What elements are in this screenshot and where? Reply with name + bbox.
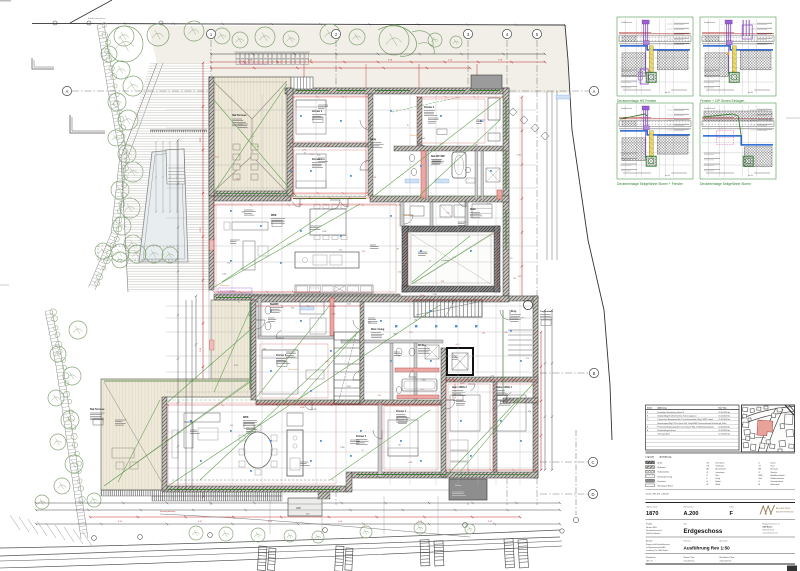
svg-text:A: A [593,89,596,94]
svg-text:Fensterbau Schreinerliste Stan: Fensterbau Schreinerliste Stand 10 [658,411,685,414]
svg-text:Decke: Decke [771,463,776,465]
svg-text:4.50: 4.50 [528,411,531,413]
svg-text:1.885: 1.885 [421,380,425,382]
svg-text:2.455: 2.455 [312,409,316,411]
svg-text:Brüstung: Brüstung [771,468,778,471]
svg-text:4.50: 4.50 [215,156,218,158]
svg-text:Ländiweg 10a, 5400 Baden: Ländiweg 10a, 5400 Baden [646,550,668,552]
svg-text:2.455: 2.455 [222,273,226,275]
svg-text:WBK: WBK [271,215,277,217]
svg-text:Oberkante: Oberkante [716,465,724,468]
svg-text:2.0%: 2.0% [251,136,255,138]
svg-text:2.0%: 2.0% [177,432,181,434]
svg-text:01.03.2024 fbo: 01.03.2024 fbo [719,430,730,432]
svg-text:Gang: Gang [370,139,376,141]
svg-text:1.20: 1.20 [310,154,313,156]
svg-text:3.645: 3.645 [460,383,465,385]
svg-text:Erlenbacherstrasse: Erlenbacherstrasse [88,17,106,20]
svg-text:1.20: 1.20 [227,263,230,265]
svg-text:Redu: Redu [470,209,476,211]
svg-text:Plan: Plan [684,524,688,526]
svg-text:Zimmer 1: Zimmer 1 [312,159,323,161]
svg-text:Bad 4.6 Bodenkanal: Bad 4.6 Bodenkanal [220,291,237,293]
svg-text:3.64: 3.64 [317,155,320,157]
svg-text:3.115: 3.115 [234,365,238,367]
svg-text:1.885: 1.885 [322,231,326,233]
svg-text:HaG 2 WHG 2: HaG 2 WHG 2 [452,387,468,389]
svg-text:Wärmedämmung: Wärmedämmung [658,475,673,478]
svg-text:3.115: 3.115 [433,294,437,296]
svg-text:Planen gem.: Planen gem. [220,285,231,287]
svg-text:F: F [730,511,734,517]
svg-text:1.20: 1.20 [398,271,401,273]
svg-text:Metallfensterbank: Metallfensterbank [771,474,785,477]
svg-text:Plannummer: Plannummer [684,507,695,509]
svg-text:88: 88 [399,445,401,447]
svg-text:Eing.: Eing. [511,311,517,313]
svg-text:+4.05: +4.05 [292,299,296,301]
svg-text:Treppenhaus: Treppenhaus [540,310,554,313]
svg-text:3.645: 3.645 [420,295,425,297]
svg-text:1.885: 1.885 [393,333,397,335]
svg-text:88: 88 [457,146,459,148]
svg-text:2.0%: 2.0% [452,257,456,259]
svg-text:Wandung in Beton: Wandung in Beton [658,485,674,488]
svg-text:Deckeneinlage Seilgeführte Sto: Deckeneinlage Seilgeführte Storen [700,182,751,186]
svg-text:1.20: 1.20 [339,249,342,251]
svg-text:Fenstereinteilungen geändert,: Fenstereinteilungen geändert, neue Gröss… [658,425,715,428]
svg-text:01.03.2024 fbo: 01.03.2024 fbo [719,426,730,428]
svg-text:Ausführung Rev 1:50: Ausführung Rev 1:50 [684,546,731,551]
svg-text:se Eigentümerschaft AG: se Eigentümerschaft AG [646,546,666,549]
svg-text:4.50: 4.50 [230,425,233,427]
svg-text:Bad WC WM: Bad WC WM [431,156,445,158]
svg-text:Burggartenstrasse 17: Burggartenstrasse 17 [763,523,780,526]
svg-text:min 30: min 30 [665,175,670,177]
svg-text:12: 12 [441,436,443,438]
svg-text:Sturz: Sturz [771,465,775,468]
svg-text:2.30: 2.30 [482,332,485,334]
svg-text:W: W [707,484,709,486]
svg-text:2.0%: 2.0% [209,364,213,366]
svg-text:Bemerkungen Whg 1/2 Div. Küche: Bemerkungen Whg 1/2 Div. Küche UG1, Damp… [658,422,727,425]
svg-text:ATELIER WEST: ATELIER WEST [776,507,791,510]
svg-text:3.25: 3.25 [518,276,521,278]
svg-text:2.74: 2.74 [303,149,306,151]
svg-text:Dat. Visa: Dat. Visa [719,407,728,410]
svg-text:min 30: min 30 [748,175,753,177]
svg-text:Beton: Beton [658,462,663,465]
svg-text:Fenster + ZIP Storen Einlagen: Fenster + ZIP Storen Einlagen [700,99,745,103]
svg-text:25: 25 [498,395,500,397]
svg-text:Diele / Gang: Diele / Gang [371,329,385,331]
svg-text:2.455: 2.455 [517,155,521,157]
svg-text:189 / 70: 189 / 70 [646,561,653,563]
svg-text:www.atelierwest.ch: www.atelierwest.ch [763,532,778,535]
svg-text:Legende: Legende [646,457,655,459]
svg-text:2.30: 2.30 [441,281,444,283]
svg-text:Planen gem.: Planen gem. [402,215,413,217]
svg-text:3.64: 3.64 [291,308,294,310]
svg-text:Sauna: Sauna [455,485,462,487]
svg-text:Schacht: Schacht [771,471,778,474]
svg-text:ARCHITEKTEN AG: ARCHITEKTEN AG [776,511,794,514]
svg-text:Zimmer 2: Zimmer 2 [312,111,323,113]
svg-text:min 30: min 30 [665,92,670,94]
svg-text:+4.05: +4.05 [380,299,384,301]
svg-text:Wand: Wand [716,484,721,486]
svg-text:2.0%: 2.0% [287,244,291,246]
svg-text:Boden: Boden [716,481,721,483]
svg-text:1870: 1870 [646,511,658,517]
svg-text:Index: Index [730,507,734,509]
svg-text:88: 88 [309,400,311,402]
svg-text:Plansatz: Plansatz [684,540,691,543]
svg-text:Planformat: Planformat [646,556,656,559]
svg-text:12: 12 [238,302,240,304]
svg-text:2.30: 2.30 [492,234,495,236]
svg-text:Zimmer 2: Zimmer 2 [356,436,367,438]
svg-text:Fussweg befestigt: Fussweg befestigt [160,510,176,513]
svg-text:+4.05: +4.05 [420,389,424,391]
svg-text:4.50: 4.50 [368,322,371,324]
svg-text:Kunststeinbank: Kunststeinbank [771,480,783,483]
svg-text:88: 88 [475,144,477,146]
svg-text:2.30: 2.30 [236,178,239,180]
svg-text:Deckeneinlage HS Fenster: Deckeneinlage HS Fenster [617,99,657,103]
svg-text:2.30: 2.30 [409,332,412,334]
svg-text:WC/Du: WC/Du [418,345,426,347]
svg-text:2.0%: 2.0% [304,394,308,396]
svg-text:1.20: 1.20 [509,258,512,260]
svg-text:Erdgeschoss: Erdgeschoss [684,528,723,535]
svg-text:WBK: WBK [243,417,249,419]
svg-text:6.48: 6.48 [408,462,411,464]
svg-text:Vorabdeckrand: Vorabdeckrand [704,22,715,24]
svg-text:5400 Baden: 5400 Baden [763,526,773,529]
svg-text:B: B [593,371,596,376]
svg-text:01.03.2024 fbo: 01.03.2024 fbo [719,434,730,436]
svg-text:ASP: ASP [296,507,301,510]
svg-text:3.645: 3.645 [300,407,305,409]
svg-text:01.03.2024 fbo: 01.03.2024 fbo [719,419,730,421]
svg-text:12: 12 [456,316,458,318]
svg-text:1.20: 1.20 [513,278,516,280]
svg-text:88: 88 [397,249,399,251]
svg-text:2.0%: 2.0% [255,146,259,148]
svg-text:3.855: 3.855 [200,137,202,143]
svg-text:Vorabdeckrand: Vorabdeckrand [704,108,715,110]
svg-text:Rev Datum / Visa: Rev Datum / Visa [720,556,736,559]
svg-text:Projekt: Projekt [646,523,652,526]
svg-text:C: C [591,460,594,465]
svg-text:Ausführung: Ausführung [660,456,673,459]
svg-text:+4.05: +4.05 [455,344,459,346]
svg-text:Kalksandstein: Kalksandstein [658,471,670,474]
svg-text:4.50: 4.50 [491,376,494,378]
svg-text:88: 88 [407,286,409,288]
svg-text:Aussenkante: Aussenkante [716,468,726,471]
svg-text:Bad/WC: Bad/WC [270,304,279,306]
svg-text:+2.7: +2.7 [720,128,724,130]
svg-text:Deckeneinlage Seilgeführte Sto: Deckeneinlage Seilgeführte Storen + Fens… [617,182,684,186]
svg-text:Bad Terrasse: Bad Terrasse [90,409,105,411]
svg-text:1.885: 1.885 [340,447,344,449]
svg-text:D: D [591,492,594,497]
svg-text:Kamistein: Kamistein [658,480,666,483]
svg-text:2.30: 2.30 [362,251,365,253]
svg-text:SaGa 1 WHG 1: SaGa 1 WHG 1 [496,387,513,389]
svg-text:Roh: Roh [716,475,719,477]
svg-text:2.0%: 2.0% [440,144,444,146]
svg-text:12: 12 [429,260,431,262]
svg-text:A: A [66,89,69,94]
svg-text:25: 25 [407,125,409,127]
svg-text:Unterkante: Unterkante [716,462,725,465]
svg-text:23.02.2024 mo: 23.02.2024 mo [720,561,732,563]
svg-text:Raffstorenkasten: Raffstorenkasten [771,477,785,480]
svg-text:3.64: 3.64 [263,349,266,351]
svg-text:FensterVorlagen Grösse: FensterVorlagen Grösse [658,429,676,432]
svg-text:Bauherr: Bauherr [646,541,653,543]
svg-text:+4.05: +4.05 [238,61,242,63]
svg-text:4.50: 4.50 [446,212,449,214]
svg-text:1.20: 1.20 [377,395,380,397]
svg-text:2.455: 2.455 [347,386,351,388]
svg-text:Backstein: Backstein [658,466,666,469]
svg-text:Sitzplatzbeläge/TürSchreinerli: Sitzplatzbeläge/TürSchreinerliste, Store… [658,414,697,417]
svg-text:Mauerwerk: Mauerwerk [771,484,780,486]
svg-text:01.03.2024 fbo: 01.03.2024 fbo [719,412,730,414]
svg-text:12: 12 [362,450,364,452]
svg-text:3.115: 3.115 [347,304,351,306]
svg-text:Neualtwilerstrasse 5: Neualtwilerstrasse 5 [646,529,662,532]
svg-text:4.50: 4.50 [504,332,507,334]
svg-text:2.74: 2.74 [526,358,529,360]
svg-text:Schlussprobeam: Schlussprobeam [658,433,671,436]
svg-text:min 30: min 30 [748,92,753,94]
svg-text:4.50: 4.50 [249,327,252,329]
svg-text:Änderung: Änderung [658,407,668,410]
svg-text:2.74: 2.74 [487,203,490,205]
svg-text:Zimmer 2: Zimmer 2 [424,107,435,109]
svg-text:Vorabdeckrand: Vorabdeckrand [621,108,632,110]
svg-text:9.12.2023 mo: 9.12.2023 mo [684,561,695,563]
svg-text:Planen gem.: Planen gem. [288,369,299,371]
svg-text:3.64: 3.64 [414,320,417,322]
svg-text:6.48: 6.48 [372,177,375,179]
svg-text:Massstab: Massstab [720,540,728,543]
svg-text:01.03.2024 fbo: 01.03.2024 fbo [719,415,730,417]
svg-text:A.200: A.200 [684,511,699,517]
svg-text:25: 25 [304,153,306,155]
svg-text:5400 Ennetbaden: 5400 Ennetbaden [646,532,660,535]
svg-text:2.455: 2.455 [331,313,335,315]
svg-text:Bürgerschaft Neualtwilerstras-: Bürgerschaft Neualtwilerstras- [646,543,670,546]
svg-text:Bad Terrasse: Bad Terrasse [232,115,247,117]
svg-text:Lichtschacht, Aussenwand Det.: Lichtschacht, Aussenwand Det. Türen Schr… [658,418,714,421]
svg-text:Fertig: Fertig [716,477,721,480]
svg-text:Datum / Visa: Datum / Visa [684,556,696,559]
svg-text:3.25: 3.25 [326,146,329,148]
svg-text:±0.00 = FB. EG = 405.60: ±0.00 = FB. EG = 405.60 [646,494,670,496]
svg-text:1.885: 1.885 [241,212,245,214]
svg-text:Neubau MFH: Neubau MFH [646,527,657,529]
svg-text:2.0%: 2.0% [490,428,494,430]
svg-text:Innenkante: Innenkante [716,471,725,474]
svg-text:Vorabdeckrand: Vorabdeckrand [621,22,632,24]
svg-text:056 210 45 45: 056 210 45 45 [763,530,775,532]
svg-text:Objektnummer: Objektnummer [646,506,658,509]
svg-text:1.20: 1.20 [332,306,335,308]
svg-text:2.0%: 2.0% [293,350,297,352]
